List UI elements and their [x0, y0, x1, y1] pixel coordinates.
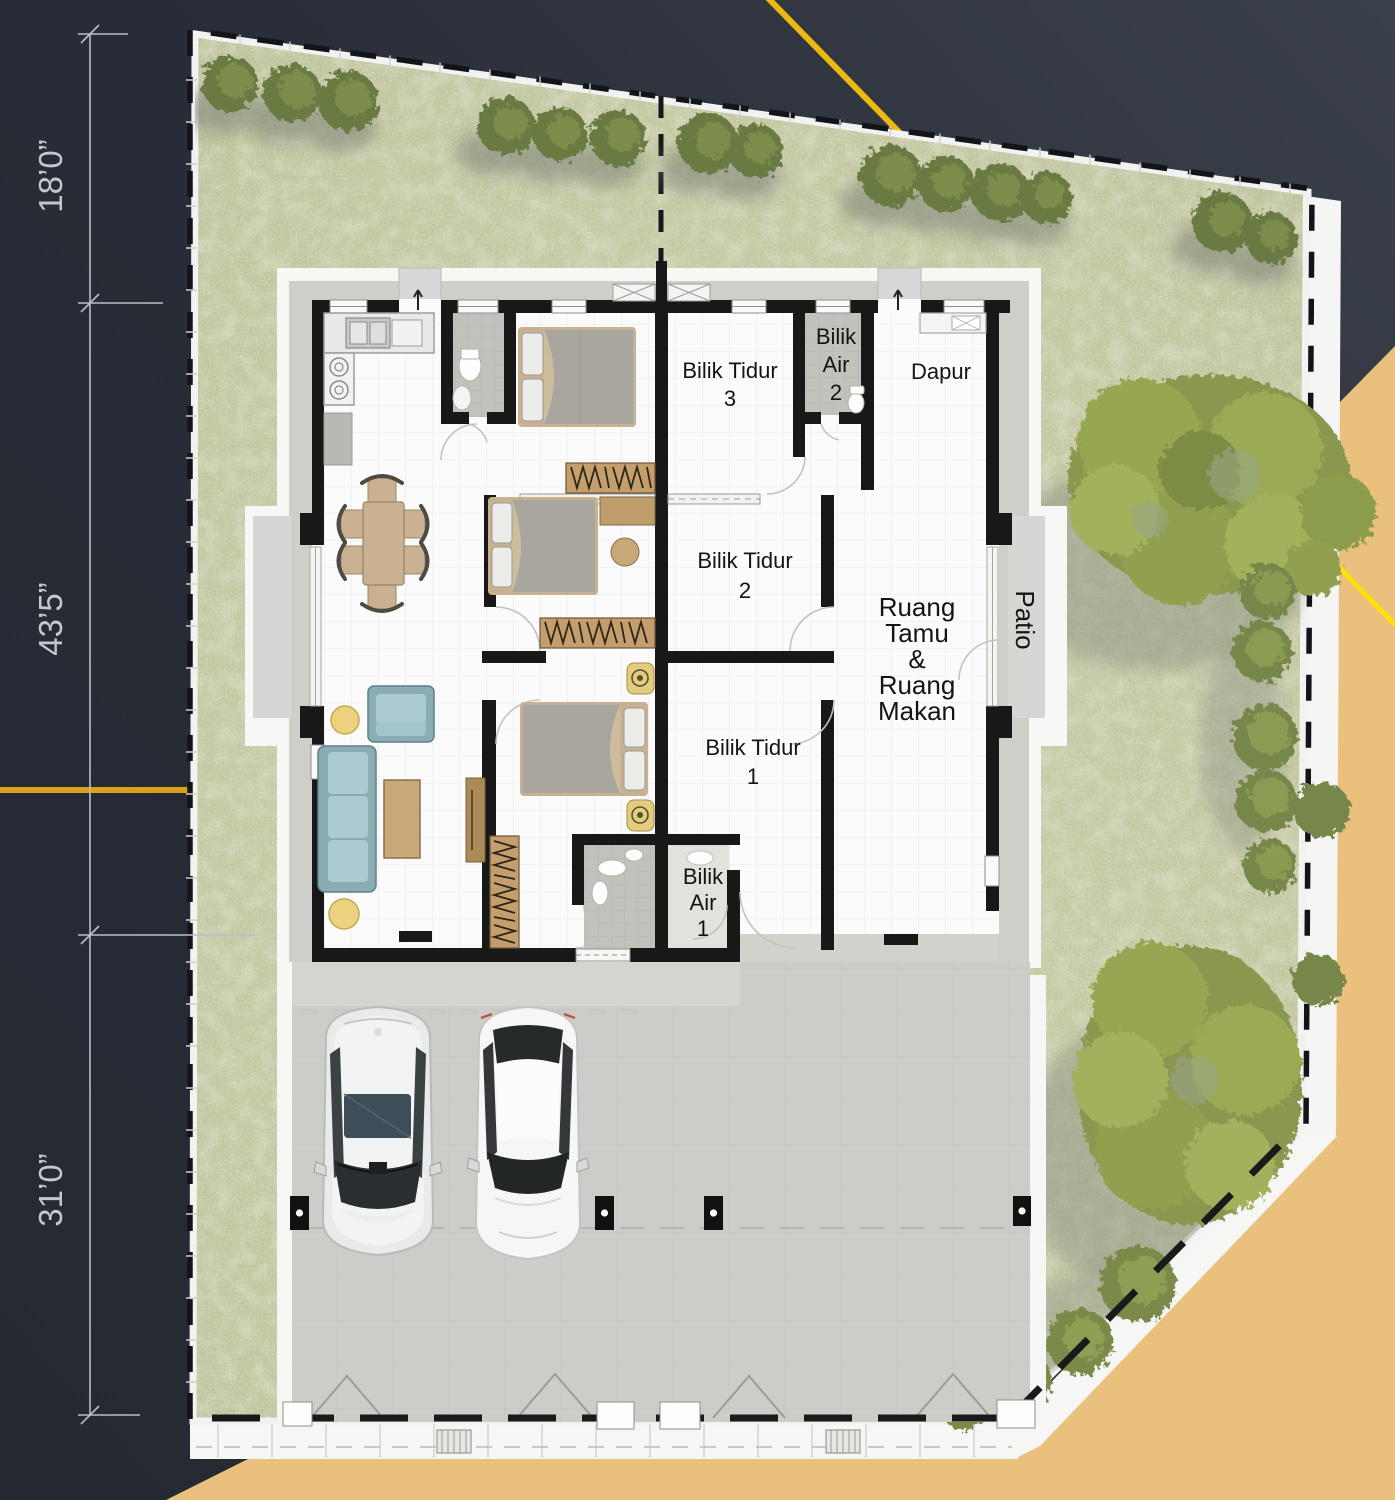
svg-text:2: 2 — [739, 578, 751, 603]
svg-text:43’5”: 43’5” — [32, 582, 69, 655]
svg-text:Bilik: Bilik — [816, 324, 857, 349]
svg-text:Bilik Tidur: Bilik Tidur — [682, 358, 777, 383]
svg-text:1: 1 — [747, 764, 759, 789]
svg-text:Bilik: Bilik — [683, 864, 724, 889]
svg-text:Bilik Tidur: Bilik Tidur — [705, 735, 800, 760]
svg-text:2: 2 — [830, 380, 842, 405]
svg-text:3: 3 — [724, 386, 736, 411]
svg-text:18’0”: 18’0” — [32, 139, 69, 212]
svg-text:Dapur: Dapur — [911, 359, 971, 384]
svg-text:1: 1 — [697, 916, 709, 941]
svg-text:Patio: Patio — [1010, 590, 1040, 649]
svg-text:31’0”: 31’0” — [32, 1153, 69, 1226]
svg-text:Air: Air — [690, 890, 717, 915]
svg-text:Makan: Makan — [878, 696, 956, 726]
svg-text:Bilik Tidur: Bilik Tidur — [697, 548, 792, 573]
svg-text:Air: Air — [823, 352, 850, 377]
